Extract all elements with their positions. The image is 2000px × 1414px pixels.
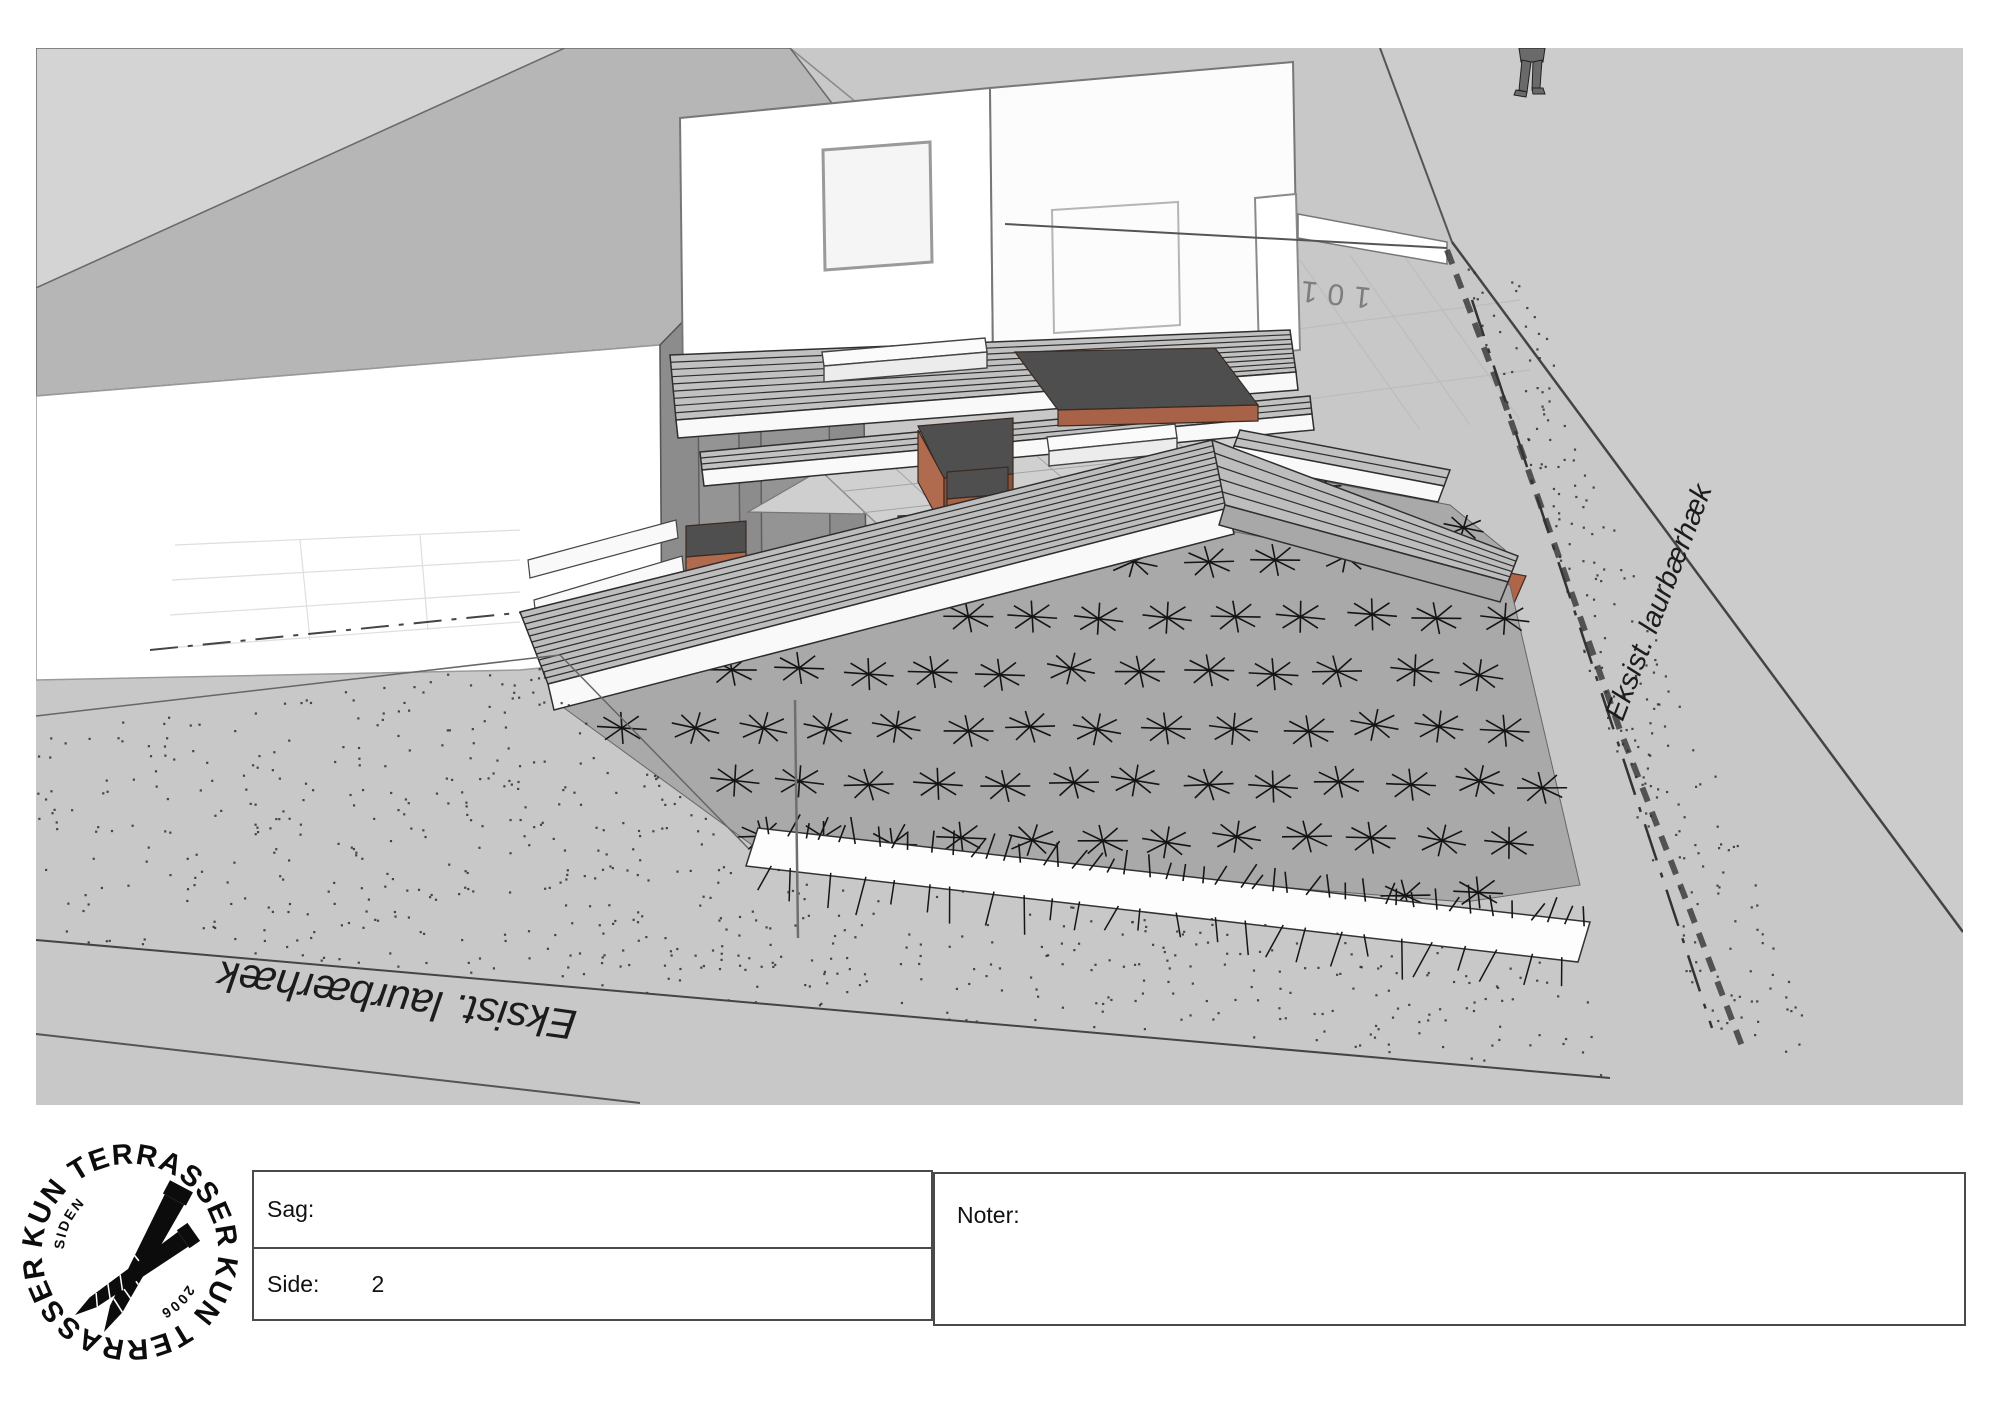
planter-top-right-soil (1015, 348, 1258, 410)
sag-label: Sag: (267, 1196, 314, 1223)
neighbor-wall-right (990, 62, 1298, 358)
neighbor-window (823, 142, 932, 270)
side-row: Side: 2 (254, 1249, 931, 1319)
noter-label: Noter: (957, 1202, 1020, 1228)
side-value: 2 (371, 1271, 384, 1298)
sag-row: Sag: (254, 1172, 931, 1249)
title-block-case-table: Sag: Side: 2 (252, 1170, 933, 1321)
planter-d-soil (686, 521, 746, 557)
noter-box: Noter: (933, 1172, 1966, 1326)
side-label: Side: (267, 1271, 319, 1298)
